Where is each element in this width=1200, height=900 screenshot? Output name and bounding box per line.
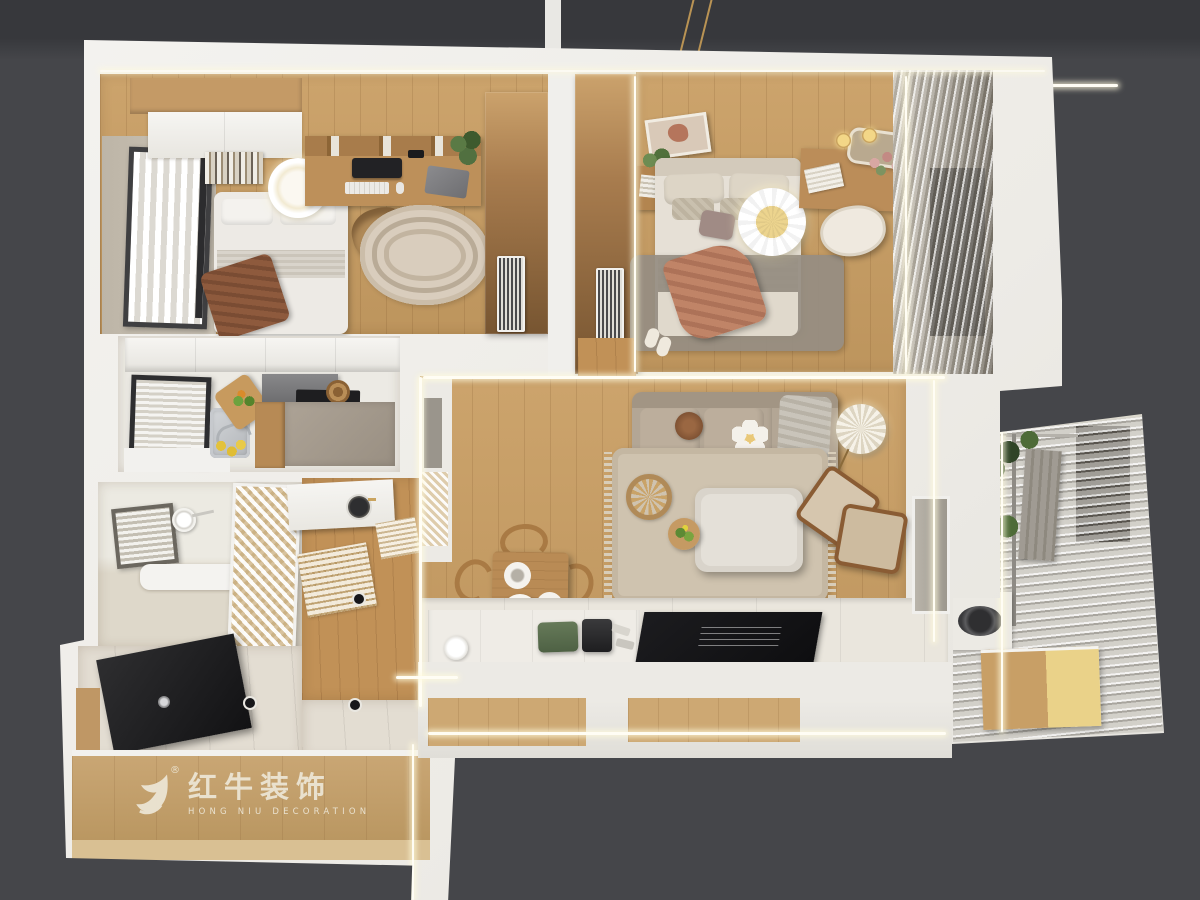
cabinet-seam [195, 338, 196, 372]
vanity-lamp [836, 133, 851, 148]
light-line-top-wall [100, 70, 1045, 72]
balcony-plant [940, 414, 1044, 490]
cabinet-seam [335, 338, 336, 372]
desk-mouse [396, 182, 404, 194]
coffee-table-top [701, 494, 797, 566]
south-wall-wood-panel [628, 698, 800, 742]
desk-phone [408, 150, 424, 158]
woven-wall-ring [626, 474, 672, 520]
light-line-closet [634, 76, 636, 372]
brand-watermark: ® 红牛装饰 HONG NIU DECORATION [130, 764, 410, 826]
vessel-sink [348, 496, 370, 518]
doorway-threshold [578, 338, 636, 378]
master-ceiling-light-swirl [738, 188, 806, 256]
floor-lamp-shade [836, 404, 886, 454]
ac-vent-grille [497, 256, 525, 332]
round-tray [326, 380, 350, 404]
pass-through-niche [424, 398, 442, 468]
hongniu-bull-icon: ® [130, 769, 178, 821]
green-appliance [537, 621, 578, 652]
lounge-chair [833, 503, 909, 576]
dinner-plate [504, 562, 531, 589]
light-line-living-top [423, 376, 945, 379]
balcony-cabinet [981, 646, 1102, 730]
vanity-lamp [862, 128, 877, 143]
kitchen-lower-wood-cabinet [255, 402, 285, 468]
apartment-footprint: ® 红牛装饰 HONG NIU DECORATION [0, 0, 1200, 900]
south-wall-wood-panel [428, 698, 586, 746]
bed-headboard [655, 158, 801, 176]
study-top-cabinet-wood [130, 78, 302, 114]
bathroom-window [111, 503, 179, 569]
desk-keyboard [345, 182, 389, 194]
cabinet-seam [265, 338, 266, 372]
brand-name-cn: 红牛装饰 [188, 772, 370, 804]
sink-faucet-gold [368, 498, 376, 501]
balcony-plant [968, 494, 1024, 548]
light-line-sliver [412, 744, 414, 900]
bed-pillow [221, 199, 273, 225]
study-rug [360, 205, 490, 305]
laundry-sink [958, 606, 1002, 636]
light-line-entry-cross [396, 676, 458, 679]
apartment-3d-floorplan-render: ® 红牛装饰 HONG NIU DECORATION [0, 0, 1200, 900]
light-line-master-right [905, 76, 907, 372]
side-table-plant [672, 522, 696, 546]
registered-mark: ® [170, 765, 180, 776]
study-plant [447, 128, 485, 168]
white-canister [444, 636, 468, 660]
floor-spotlight [245, 698, 255, 708]
shower-head [172, 508, 196, 532]
floor-spotlight [350, 700, 360, 710]
study-shelf-books [205, 152, 263, 184]
tv-screen-text-lines [698, 626, 782, 646]
light-line-balcony-door [933, 380, 935, 642]
light-line-living-left [419, 377, 422, 707]
closet-divider-wall [548, 70, 575, 376]
bathroom-ledge [140, 564, 244, 590]
light-line-living-bottom [428, 732, 946, 735]
kitchen-counter-top [285, 402, 395, 466]
bed-accent-pillow [698, 209, 736, 241]
cabinet-knob [158, 696, 170, 708]
watermark-wall-base [72, 840, 430, 860]
brand-name-en: HONG NIU DECORATION [188, 808, 370, 817]
desk-laptop [424, 165, 469, 199]
round-pillow [675, 412, 703, 440]
floor-spotlight [354, 594, 364, 604]
sheer-curtain [893, 70, 993, 374]
balcony-door-glass [912, 496, 950, 614]
light-line-balcony-left [1001, 432, 1003, 732]
coffee-machine [582, 619, 612, 652]
desk-monitor [352, 158, 402, 178]
glass-block-back [422, 472, 448, 546]
lemons [212, 436, 248, 458]
mosaic-runner [297, 542, 377, 617]
kitchen-upper-cabinets [125, 338, 400, 372]
rug-fringe [604, 452, 612, 598]
mosaic-mat [375, 517, 421, 559]
balcony-shelf-bar [956, 393, 1060, 409]
